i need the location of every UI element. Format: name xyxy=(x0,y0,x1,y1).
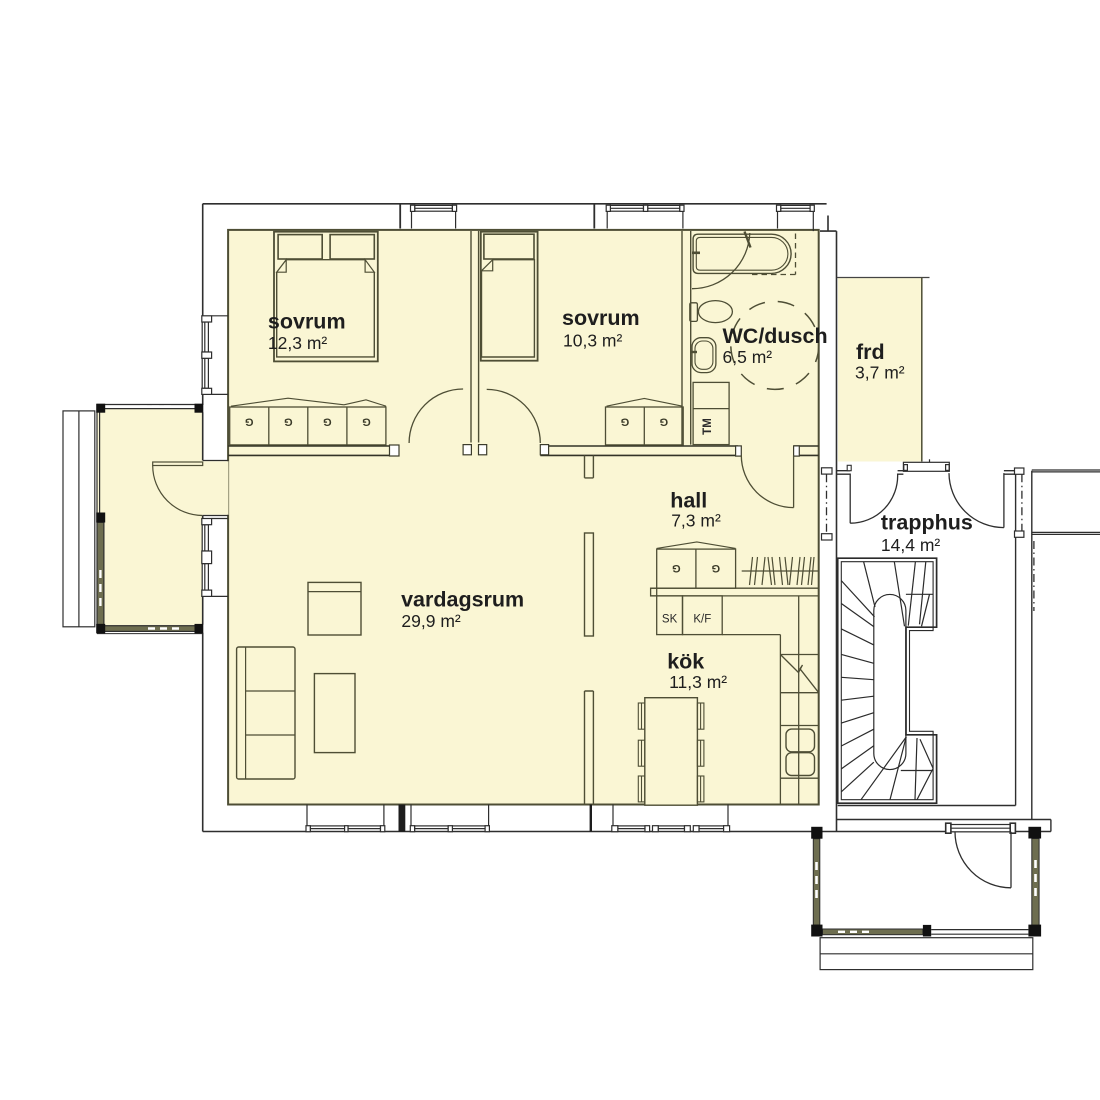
svg-text:kök: kök xyxy=(667,649,704,673)
svg-text:WC/dusch: WC/dusch xyxy=(723,324,828,348)
svg-text:G: G xyxy=(712,562,721,574)
svg-text:3,7 m²: 3,7 m² xyxy=(855,363,905,383)
svg-text:11,3 m²: 11,3 m² xyxy=(669,672,727,692)
svg-text:G: G xyxy=(621,416,630,428)
svg-text:6,5 m²: 6,5 m² xyxy=(723,347,773,367)
svg-text:SK: SK xyxy=(662,614,678,626)
svg-text:14,4 m²: 14,4 m² xyxy=(881,535,940,555)
svg-text:7,3 m²: 7,3 m² xyxy=(671,510,721,530)
svg-text:29,9 m²: 29,9 m² xyxy=(401,611,460,631)
svg-text:K/F: K/F xyxy=(693,614,711,626)
svg-text:G: G xyxy=(245,416,254,428)
svg-text:G: G xyxy=(284,416,293,428)
svg-text:TM: TM xyxy=(702,418,714,435)
svg-text:10,3 m²: 10,3 m² xyxy=(563,330,622,350)
svg-text:sovrum: sovrum xyxy=(268,309,346,333)
svg-text:sovrum: sovrum xyxy=(562,306,640,330)
svg-text:hall: hall xyxy=(670,489,707,513)
svg-text:trapphus: trapphus xyxy=(881,511,973,535)
svg-text:G: G xyxy=(660,416,669,428)
svg-text:12,3 m²: 12,3 m² xyxy=(268,333,327,353)
svg-text:G: G xyxy=(362,416,371,428)
svg-text:G: G xyxy=(323,416,332,428)
svg-text:G: G xyxy=(672,562,681,574)
svg-text:vardagsrum: vardagsrum xyxy=(401,588,524,612)
svg-text:frd: frd xyxy=(856,340,885,364)
